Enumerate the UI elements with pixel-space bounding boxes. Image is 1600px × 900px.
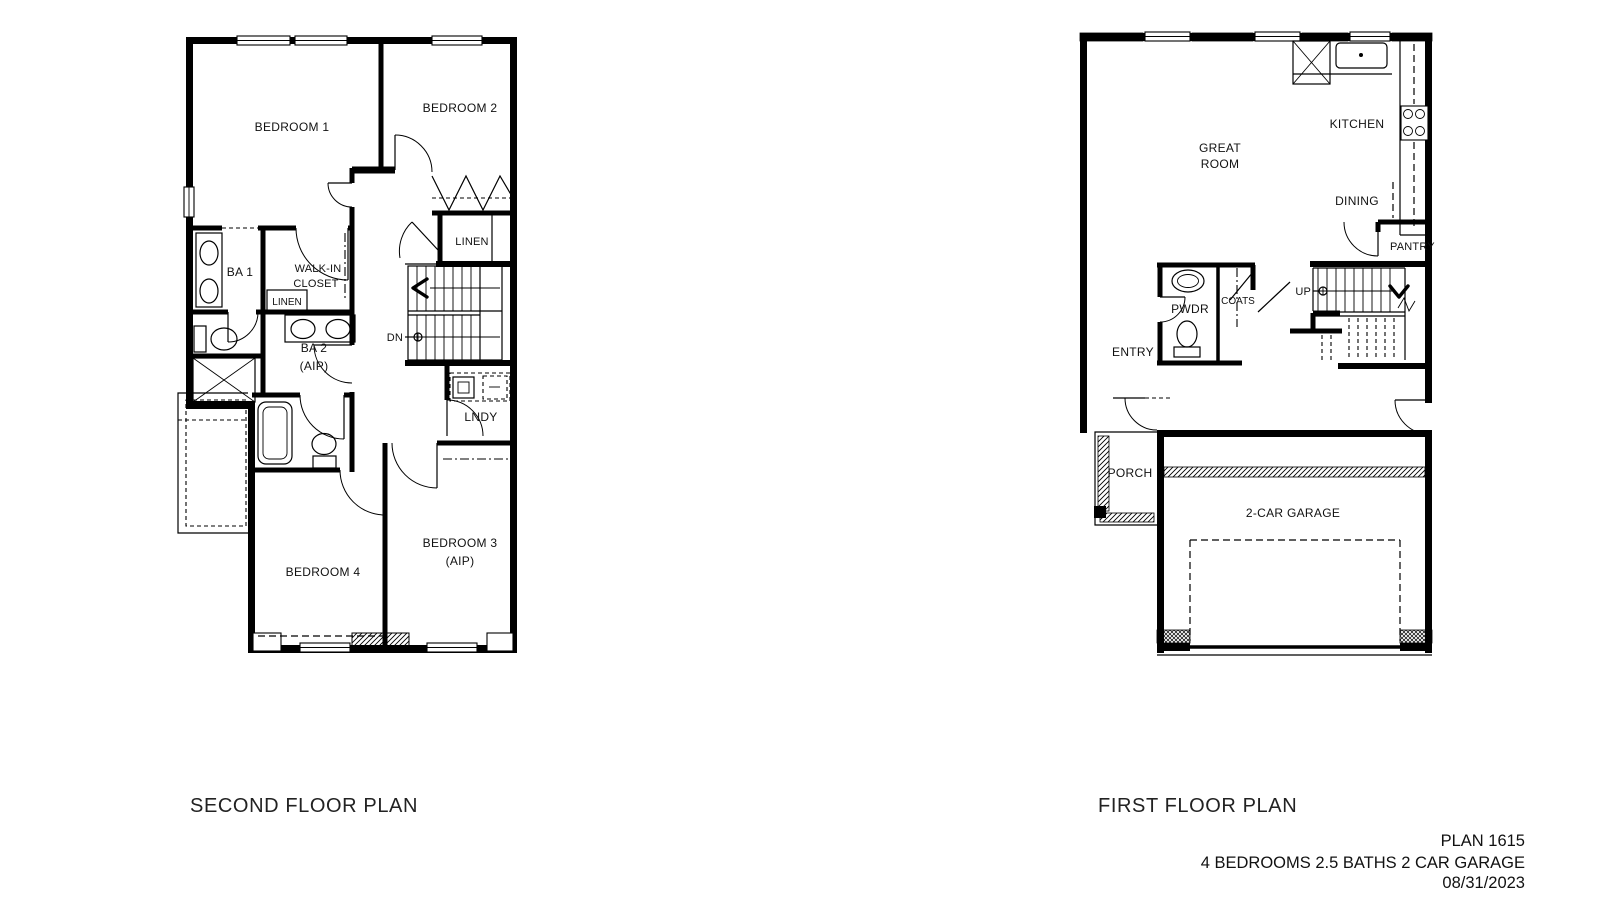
- window: [1145, 32, 1390, 41]
- room-label-linen: LINEN: [455, 236, 488, 248]
- room-label-coats: COATS: [1221, 296, 1255, 307]
- plan-number: PLAN 1615: [1441, 832, 1525, 850]
- second-floor-plan: BEDROOM 1 BEDROOM 2 LINEN BA 1 WALK-IN C…: [178, 36, 517, 817]
- room-label-bedroom4: BEDROOM 4: [286, 565, 361, 579]
- shear-panel-hatch: [1302, 33, 1348, 41]
- shear-panel-hatch: [1157, 630, 1190, 643]
- room-label-bedroom3: BEDROOM 3: [423, 536, 498, 550]
- second-floor-title: SECOND FLOOR PLAN: [190, 795, 418, 817]
- room-label-entry: ENTRY: [1112, 345, 1154, 359]
- porch-post: [1094, 506, 1106, 518]
- roof-below-outline: [178, 393, 248, 533]
- window: [184, 36, 482, 217]
- room-label-linen-small: LINEN: [272, 297, 301, 308]
- ba1-sink: [200, 241, 218, 265]
- ba1-sink2: [200, 279, 218, 303]
- room-label-porch: PORCH: [1108, 466, 1153, 480]
- pwdr-sink: [1172, 270, 1204, 292]
- shear-panel-hatch: [1080, 33, 1143, 41]
- room-label-lndy: LNDY: [464, 410, 497, 424]
- washer-dryer: [450, 373, 510, 401]
- toilet: [312, 434, 336, 455]
- room-label-bedroom1: BEDROOM 1: [255, 120, 330, 134]
- shear-panel-hatch: [1400, 630, 1432, 643]
- second-floor-stairs: [405, 266, 502, 360]
- window-seat-hatch: [352, 633, 409, 647]
- room-label-ba1: BA 1: [227, 265, 254, 279]
- floorplan-drawing: BEDROOM 1 BEDROOM 2 LINEN BA 1 WALK-IN C…: [0, 0, 1600, 900]
- plan-date: 08/31/2023: [1442, 874, 1525, 892]
- toilet: [211, 328, 237, 350]
- range: [1401, 106, 1428, 140]
- room-label-ba2: BA 2: [301, 341, 328, 355]
- room-label-walkin-2: CLOSET: [293, 278, 338, 290]
- stair-label-dn: DN: [387, 332, 403, 344]
- stair-up-arrow-icon: [413, 279, 427, 297]
- plan-specs: 4 BEDROOMS 2.5 BATHS 2 CAR GARAGE: [1201, 854, 1525, 872]
- stair-label-up: UP: [1295, 286, 1311, 298]
- room-label-great-1: GREAT: [1199, 141, 1241, 155]
- room-label-kitchen: KITCHEN: [1330, 117, 1385, 131]
- room-label-pantry: PANTRY: [1390, 241, 1435, 253]
- fire-separation-hatch: [1164, 467, 1425, 477]
- first-floor-plan: GREAT ROOM KITCHEN DINING PANTRY PWDR CO…: [1080, 32, 1435, 817]
- room-label-ba2-aip: (AIP): [300, 359, 329, 373]
- room-label-dining: DINING: [1335, 194, 1379, 208]
- shower: [193, 358, 255, 402]
- floorplan-sheet: BEDROOM 1 BEDROOM 2 LINEN BA 1 WALK-IN C…: [0, 0, 1600, 900]
- toilet-tank: [1174, 347, 1200, 357]
- room-label-walkin-1: WALK-IN: [295, 263, 342, 275]
- room-label-bedroom3-aip: (AIP): [446, 554, 475, 568]
- break-line: [1398, 298, 1415, 311]
- room-label-bedroom2: BEDROOM 2: [423, 101, 498, 115]
- room-label-pwdr: PWDR: [1171, 302, 1209, 316]
- title-block: PLAN 1615 4 BEDROOMS 2.5 BATHS 2 CAR GAR…: [1201, 832, 1525, 892]
- ba2-vanity: [285, 315, 355, 342]
- room-label-garage: 2-CAR GARAGE: [1246, 506, 1340, 520]
- ba2-sink2: [326, 320, 350, 339]
- ba2-sink: [291, 320, 315, 339]
- garage: [1164, 467, 1425, 641]
- toilet-tank: [194, 326, 206, 352]
- bifold-door: [432, 176, 513, 210]
- first-floor-title: FIRST FLOOR PLAN: [1098, 795, 1297, 817]
- shear-panel-hatch: [1192, 33, 1253, 41]
- toilet: [1177, 321, 1197, 347]
- first-floor-labels: GREAT ROOM KITCHEN DINING PANTRY PWDR CO…: [1108, 117, 1436, 520]
- ba1-vanity: [196, 233, 222, 307]
- understair-dashed-treads: [1322, 318, 1394, 360]
- toilet-tank: [313, 456, 336, 468]
- room-label-great-2: ROOM: [1201, 157, 1240, 171]
